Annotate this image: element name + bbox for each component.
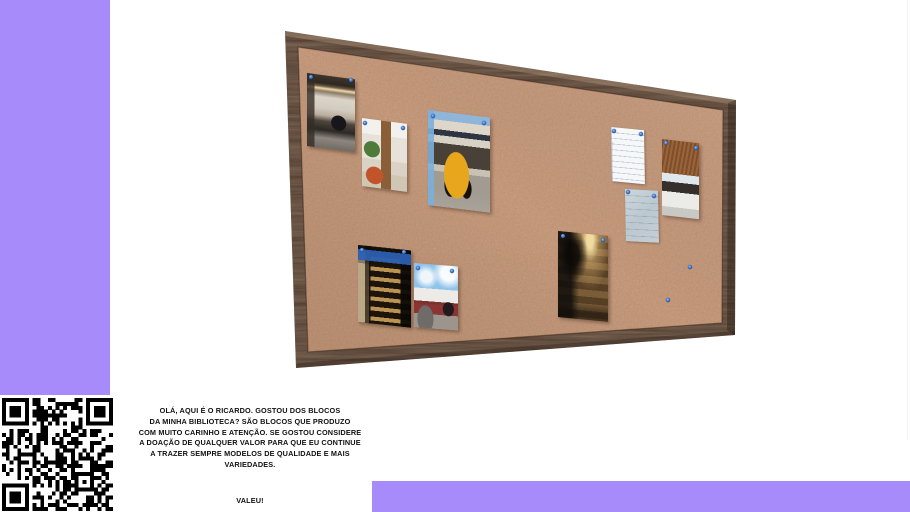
pinned-white-document — [611, 127, 645, 184]
promo-message: OLÁ, AQUI É O RICARDO. GOSTOU DOS BLOCOS… — [116, 406, 384, 507]
message-line: DA MINHA BIBLIOTECA? SÃO BLOCOS QUE PROD… — [116, 417, 384, 428]
render-canvas: OLÁ, AQUI É O RICARDO. GOSTOU DOS BLOCOS… — [0, 0, 910, 512]
qr-code — [2, 398, 113, 511]
message-line: COM MUITO CARINHO E ATENÇÃO. SE GOSTOU C… — [116, 428, 384, 439]
message-closing: VALEU! — [116, 496, 384, 507]
message-line: VARIEDADES. — [116, 460, 384, 471]
message-line: A DOAÇÃO DE QUALQUER VALOR PARA QUE EU C… — [116, 438, 384, 449]
photo-warehouse — [558, 231, 608, 322]
photo-kitchen — [662, 139, 699, 219]
photo-vending-machine — [358, 245, 411, 328]
message-line: OLÁ, AQUI É O RICARDO. GOSTOU DOS BLOCOS — [116, 406, 384, 417]
photo-street-facade — [414, 263, 458, 330]
message-line: A TRAZER SEMPRE MODELOS DE QUALIDADE E M… — [116, 449, 384, 460]
photo-home-office — [307, 73, 355, 152]
photo-yellow-truck — [428, 110, 490, 213]
photo-living-room — [362, 118, 407, 192]
pinned-gray-sketch — [625, 189, 659, 243]
